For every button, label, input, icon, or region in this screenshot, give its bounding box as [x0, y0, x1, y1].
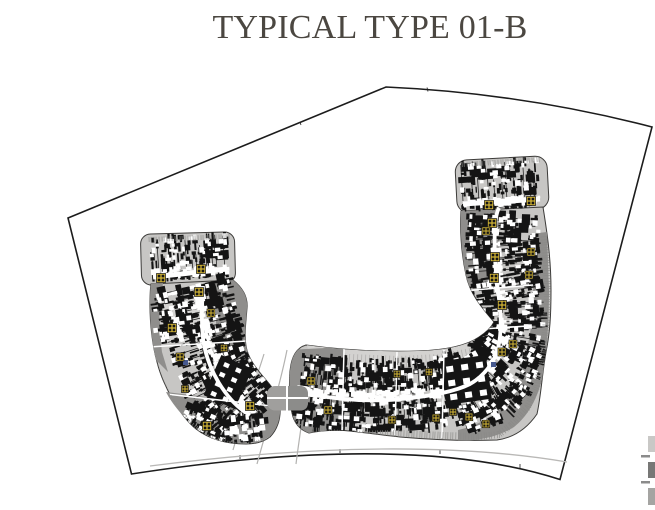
svg-text:TYPICAL TYPE 01-B: TYPICAL TYPE 01-B	[212, 9, 527, 46]
